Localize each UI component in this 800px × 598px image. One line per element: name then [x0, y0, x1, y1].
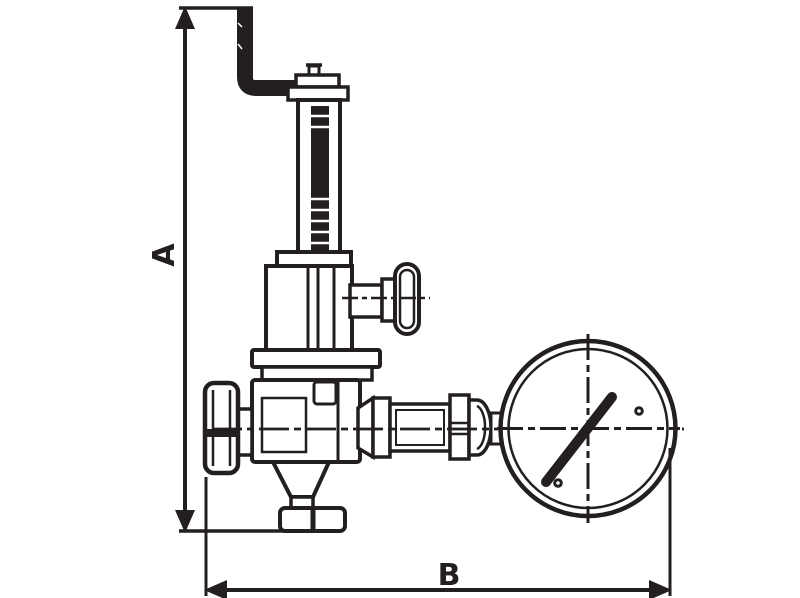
gauge-mark-dot-hole [637, 409, 641, 413]
dimension-a-label: A [147, 243, 182, 267]
drawing-canvas: A [0, 0, 800, 598]
hex-nut [450, 395, 469, 459]
gauge-pivot-dot-hole [556, 481, 560, 485]
body-flange [252, 350, 380, 367]
dimension-b-label: B [438, 558, 461, 593]
nipple [390, 404, 450, 451]
spring-housing [266, 252, 352, 350]
bonnet-tube [298, 100, 340, 253]
port-chamfer [358, 398, 373, 457]
gauge-connection-piping [358, 395, 504, 459]
pressure-gauge [497, 334, 680, 523]
adjusting-cap [288, 65, 348, 100]
valve-technical-drawing: A [0, 0, 800, 598]
vent-pipe [238, 9, 296, 88]
bottom-outlet-union [273, 462, 345, 531]
body-boss [314, 382, 336, 404]
outlet-taper [273, 462, 329, 497]
port-collar [373, 398, 390, 457]
side-valve-handle [342, 264, 430, 334]
cap-nut [296, 75, 339, 87]
handle-stem [350, 285, 382, 317]
vent-pipe-elbow [245, 9, 296, 88]
